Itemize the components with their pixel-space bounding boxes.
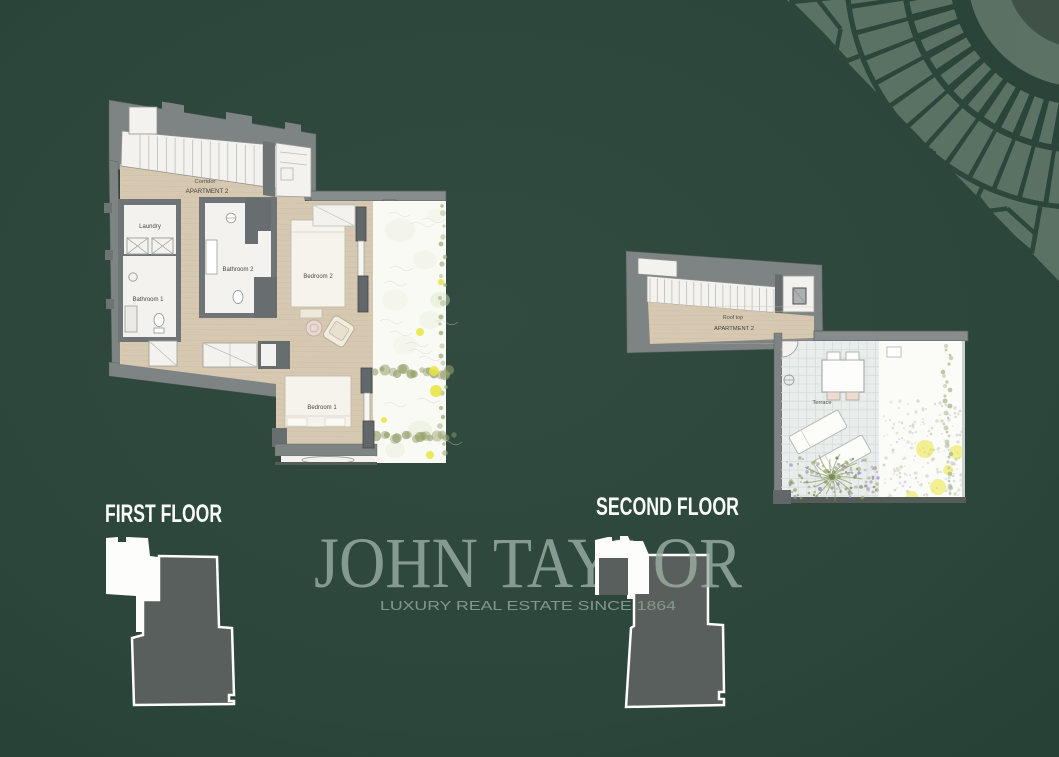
svg-text:Laundry: Laundry	[139, 224, 161, 230]
svg-text:JOHN TAYLOR: JOHN TAYLOR	[314, 523, 742, 603]
svg-text:LUXURY REAL ESTATE SINCE 1864: LUXURY REAL ESTATE SINCE 1864	[380, 598, 676, 613]
svg-text:Bedroom 1: Bedroom 1	[307, 405, 337, 411]
svg-text:Bathroom 2: Bathroom 2	[222, 267, 254, 273]
svg-text:APARTMENT 2: APARTMENT 2	[714, 326, 754, 332]
svg-text:Bathroom 1: Bathroom 1	[132, 297, 164, 303]
svg-text:SECOND FLOOR: SECOND FLOOR	[596, 493, 739, 521]
svg-text:APARTMENT 2: APARTMENT 2	[186, 188, 229, 195]
svg-text:Terrace: Terrace	[812, 400, 831, 406]
svg-text:Bedroom 2: Bedroom 2	[303, 274, 333, 280]
svg-text:Roof top: Roof top	[723, 315, 743, 321]
svg-text:Corridor: Corridor	[195, 179, 216, 185]
svg-text:FIRST FLOOR: FIRST FLOOR	[105, 500, 222, 528]
